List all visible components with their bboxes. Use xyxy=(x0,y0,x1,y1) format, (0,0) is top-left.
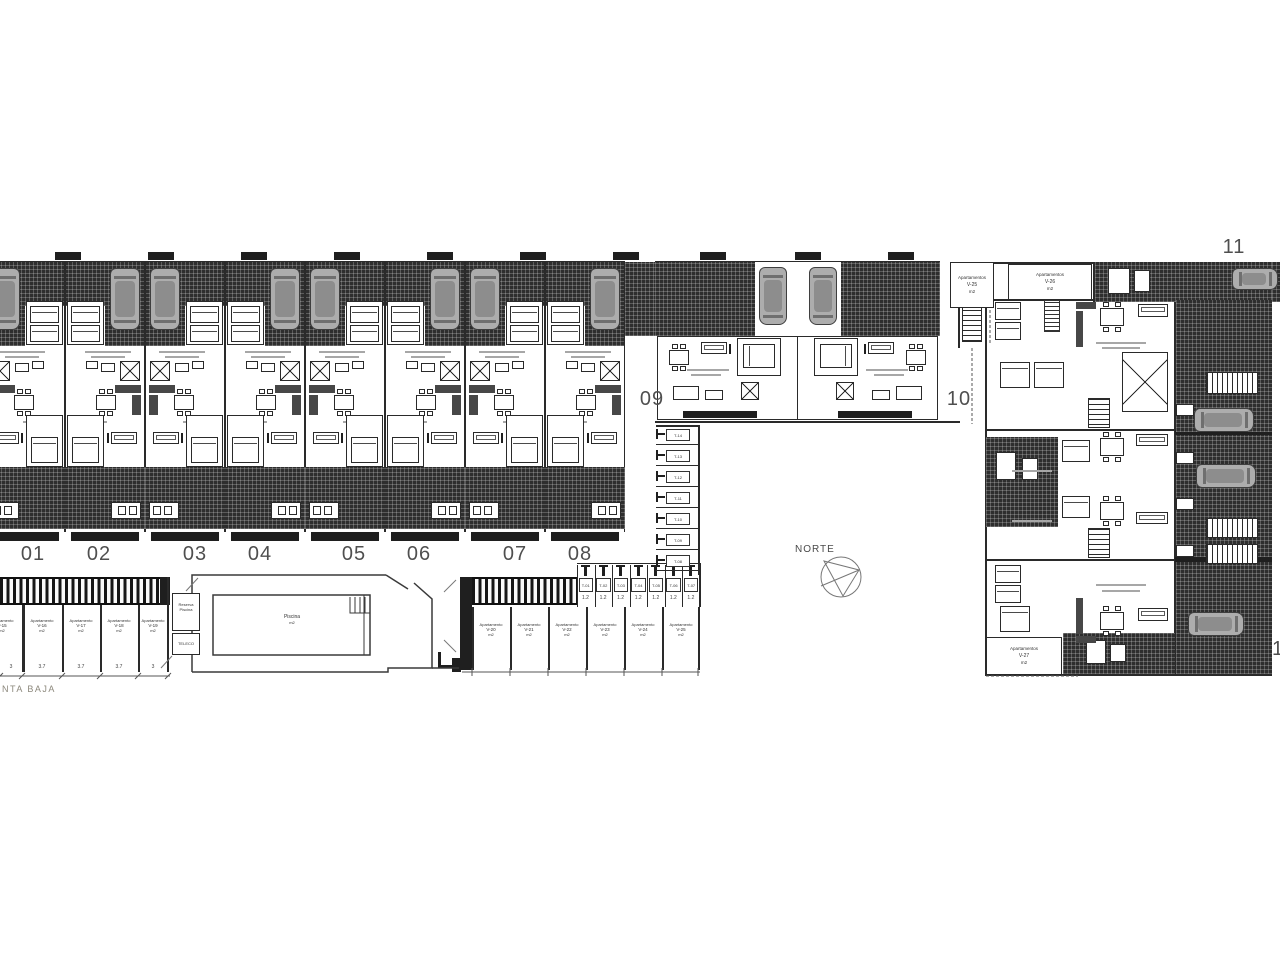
sofa-icon xyxy=(1136,512,1168,524)
dimension-value: 1.2 xyxy=(683,595,698,601)
chair-icon xyxy=(107,411,113,416)
storage-divider xyxy=(656,507,698,508)
car-roof xyxy=(1198,617,1232,631)
rear-patio-hatch xyxy=(65,467,145,529)
chair-icon xyxy=(909,344,915,349)
kitchen-counter xyxy=(115,385,141,393)
storage-unit-label: T-07 xyxy=(684,578,699,592)
storage-divider xyxy=(656,528,698,529)
unit-number: 04 xyxy=(244,543,276,566)
apartment-box-title: Apartamentos xyxy=(1036,272,1064,278)
micro-text xyxy=(874,374,904,376)
bed-icon xyxy=(350,325,379,342)
chair-icon xyxy=(177,389,183,394)
table-icon xyxy=(576,395,596,410)
rear-wall xyxy=(311,532,379,541)
kitchen-counter xyxy=(1076,636,1096,643)
kitchen-counter xyxy=(0,385,15,393)
car-glass xyxy=(1239,272,1242,286)
courtyard-wall xyxy=(655,421,960,423)
storage-funnel-stem xyxy=(602,567,605,576)
kitchen-counter xyxy=(309,395,318,415)
bed-icon xyxy=(1000,362,1030,388)
kitchen-counter xyxy=(1076,302,1096,309)
car-glass xyxy=(813,315,833,318)
bed-icon xyxy=(71,306,100,323)
micro-text xyxy=(1012,470,1052,472)
parking-stall-label: ApartamentoV-19m2 xyxy=(135,618,171,633)
chair-icon xyxy=(579,389,585,394)
storage-unit-label: T-13 xyxy=(666,450,690,462)
storage-funnel-stem xyxy=(658,538,665,540)
parking-stall-label: ApartamentoV-25m2 xyxy=(663,622,699,637)
kitchen-counter xyxy=(469,395,478,415)
bed-icon xyxy=(191,437,218,463)
shower-icon xyxy=(741,382,759,400)
car-icon xyxy=(809,267,837,325)
sofa-icon xyxy=(473,432,499,444)
car-glass xyxy=(1245,412,1248,428)
apartment-label-box-v26: Apartamentos V-26 m2 xyxy=(1008,264,1092,300)
tv-icon xyxy=(267,433,269,443)
chair-icon xyxy=(427,389,433,394)
shed-door xyxy=(164,506,172,515)
dimension-value: 3.7 xyxy=(111,664,127,670)
apartment-label-box-v27: Apartamentos V-27 m2 xyxy=(986,637,1062,675)
dimension-value: 3 xyxy=(145,664,161,670)
rear-wall xyxy=(471,532,539,541)
table-icon xyxy=(14,395,34,410)
bed-icon xyxy=(350,306,379,323)
car-glass xyxy=(274,276,296,279)
car-glass xyxy=(314,320,336,323)
bath-fixture xyxy=(872,390,890,400)
bed-icon xyxy=(995,585,1021,603)
table-icon xyxy=(96,395,116,410)
car-icon xyxy=(590,268,620,330)
storage-funnel-stem xyxy=(658,475,665,477)
storage-funnel-stem xyxy=(658,433,665,435)
car-glass xyxy=(1247,468,1250,484)
telecom-room-label: TELECO xyxy=(173,634,199,646)
storage-divider xyxy=(656,444,698,445)
micro-text xyxy=(565,351,611,353)
terrace-fixture xyxy=(1110,644,1126,662)
terrace-fixture xyxy=(1176,498,1194,510)
car-glass xyxy=(474,276,496,279)
dimension-value: 3.7 xyxy=(73,664,89,670)
bath-fixture xyxy=(581,363,595,372)
chair-icon xyxy=(917,366,923,371)
car-roof xyxy=(1206,469,1244,483)
tv-icon xyxy=(501,433,503,443)
chair-icon xyxy=(1115,302,1121,307)
micro-text xyxy=(479,351,525,353)
shed-door xyxy=(129,506,137,515)
car-roof xyxy=(1204,413,1242,427)
block-wall xyxy=(985,559,1176,561)
chair-icon xyxy=(1103,606,1109,611)
tv-icon xyxy=(21,433,23,443)
stall-label-line: m2 xyxy=(24,628,60,633)
storage-funnel-stem xyxy=(658,517,665,519)
bath-fixture xyxy=(512,361,524,369)
car-glass xyxy=(1269,272,1272,286)
floor-plan-canvas: 01020304050607080910ApartamentoV-15m2Apa… xyxy=(0,0,1280,960)
bed-icon xyxy=(30,306,59,323)
car-roof xyxy=(115,281,135,317)
table-icon xyxy=(174,395,194,410)
locker-row xyxy=(472,577,577,605)
chair-icon xyxy=(1103,302,1109,307)
apartment-label-box-v25: Apartamentos V-25 m2 xyxy=(950,262,994,308)
stall-divider xyxy=(548,607,550,670)
bed-icon xyxy=(551,306,580,323)
car-roof xyxy=(0,281,15,317)
car-icon xyxy=(1188,612,1244,636)
floor-plan-scene: 01020304050607080910ApartamentoV-15m2Apa… xyxy=(0,0,1280,960)
bed-icon xyxy=(551,325,580,342)
parking-stall-label: ApartamentoV-21m2 xyxy=(511,622,547,637)
bath-fixture xyxy=(101,363,115,372)
townhouse-unit xyxy=(145,255,225,545)
pool-plant-room: Reserva Piscina xyxy=(172,593,200,631)
floor-plan-title: NTA BAJA xyxy=(2,684,56,694)
block-number: 11 xyxy=(1216,236,1252,259)
storage-divider xyxy=(656,486,698,487)
townhouse-unit-inner xyxy=(0,255,65,545)
stairs xyxy=(1206,518,1258,538)
rear-patio-hatch xyxy=(385,467,465,529)
bed-icon xyxy=(231,325,260,342)
chair-icon xyxy=(497,411,503,416)
sofa-icon xyxy=(701,342,727,354)
storage-unit-label: T-03 xyxy=(614,578,629,592)
dimension-value: 1.2 xyxy=(666,595,681,601)
chair-icon xyxy=(1103,327,1109,332)
micro-text xyxy=(245,351,291,353)
townhouse-unit-inner xyxy=(225,255,305,545)
rear-patio-hatch xyxy=(305,467,385,529)
stall-label-line: m2 xyxy=(135,628,171,633)
rear-wall xyxy=(0,532,59,541)
bath-fixture xyxy=(192,361,204,369)
rear-wall xyxy=(71,532,139,541)
micro-text xyxy=(319,351,365,353)
chair-icon xyxy=(497,389,503,394)
apartment-box-id: V-25 xyxy=(967,282,977,288)
car-icon xyxy=(470,268,500,330)
stairs xyxy=(1206,544,1258,564)
shower-icon xyxy=(836,382,854,400)
chair-icon xyxy=(680,344,686,349)
car-glass xyxy=(114,320,136,323)
bed-icon xyxy=(72,437,99,463)
chair-icon xyxy=(672,344,678,349)
townhouse-unit xyxy=(385,255,465,545)
stall-label-line: m2 xyxy=(549,632,585,637)
micro-text xyxy=(1102,347,1140,349)
stall-label-line: m2 xyxy=(663,632,699,637)
dimension-value: 1.2 xyxy=(631,595,646,601)
townhouse-unit-inner xyxy=(545,255,625,545)
shed-door xyxy=(598,506,606,515)
car-roof xyxy=(764,280,782,312)
side-patio-hatch xyxy=(625,262,655,336)
storage-divider xyxy=(656,465,698,466)
car-glass xyxy=(763,315,783,318)
chair-icon xyxy=(1115,496,1121,501)
tv-icon xyxy=(341,433,343,443)
bed-icon xyxy=(743,344,775,368)
bed-icon xyxy=(511,437,538,463)
chair-icon xyxy=(587,389,593,394)
locker-row xyxy=(0,577,160,605)
parking-stall-label: ApartamentoV-20m2 xyxy=(473,622,509,637)
shed-door xyxy=(609,506,617,515)
townhouse-unit xyxy=(65,255,145,545)
car-glass xyxy=(114,276,136,279)
stair-core xyxy=(1122,352,1168,412)
car-glass xyxy=(1195,616,1198,632)
bath-fixture xyxy=(421,363,435,372)
car-roof xyxy=(595,281,615,317)
dimension-value: 1.2 xyxy=(613,595,628,601)
rear-patio-hatch xyxy=(465,467,545,529)
sofa-icon xyxy=(271,432,297,444)
bed-icon xyxy=(231,306,260,323)
car-glass xyxy=(1235,616,1238,632)
stall-divider xyxy=(624,607,626,670)
storage-funnel-stem xyxy=(584,567,587,576)
car-roof xyxy=(275,281,295,317)
bed-icon xyxy=(1034,362,1064,388)
car-icon xyxy=(759,267,787,325)
car-glass xyxy=(434,276,456,279)
townhouse-unit-inner xyxy=(465,255,545,545)
terrace-fixture xyxy=(1176,545,1194,557)
townhouse-unit-inner xyxy=(305,255,385,545)
parking-stall-label: ApartamentoV-15m2 xyxy=(0,618,20,633)
micro-text xyxy=(0,351,45,353)
rear-wall xyxy=(838,411,912,418)
stall-label-line: m2 xyxy=(101,628,137,633)
chair-icon xyxy=(17,389,23,394)
chair-icon xyxy=(1115,631,1121,636)
chair-icon xyxy=(505,389,511,394)
stall-divider xyxy=(138,605,140,672)
shed-door xyxy=(324,506,332,515)
storage-unit-label: T-02 xyxy=(596,578,611,592)
car-icon xyxy=(270,268,300,330)
car-glass xyxy=(1201,412,1204,428)
bed-icon xyxy=(71,325,100,342)
chair-icon xyxy=(1115,521,1121,526)
parapet-stub xyxy=(241,252,267,260)
dividing-wall xyxy=(460,577,472,670)
parking-stall-label: ApartamentoV-23m2 xyxy=(587,622,623,637)
car-glass xyxy=(154,276,176,279)
table-icon xyxy=(494,395,514,410)
stall-divider xyxy=(62,605,64,672)
storage-divider xyxy=(656,549,698,550)
storage-funnel-stem xyxy=(619,567,622,576)
car-icon xyxy=(310,268,340,330)
car-roof xyxy=(155,281,175,317)
stair-icon xyxy=(470,361,490,381)
kitchen-counter xyxy=(1076,311,1083,347)
storage-funnel-stem xyxy=(672,567,675,576)
storage-top-wall xyxy=(656,425,700,427)
bath-fixture xyxy=(673,386,699,400)
bed-icon xyxy=(30,325,59,342)
terrace-fixture xyxy=(1176,404,1194,416)
car-roof xyxy=(475,281,495,317)
stall-divider xyxy=(472,607,474,670)
micro-text xyxy=(1102,590,1140,592)
micro-text xyxy=(91,356,125,358)
bed-icon xyxy=(820,344,852,368)
bath-fixture xyxy=(896,386,922,400)
parking-stall-label: ApartamentoV-16m2 xyxy=(24,618,60,633)
micro-text xyxy=(159,351,205,353)
table-icon xyxy=(416,395,436,410)
parapet-stub xyxy=(427,252,453,260)
kitchen-counter xyxy=(309,385,335,393)
table-icon xyxy=(1100,308,1124,326)
kitchen-counter xyxy=(275,385,301,393)
storage-unit-label: T-08 xyxy=(666,555,690,567)
table-icon xyxy=(1100,502,1124,520)
bed-icon xyxy=(1062,496,1090,518)
telecom-room: TELECO xyxy=(172,633,200,655)
bath-fixture xyxy=(705,390,723,400)
parking-stall-label: ApartamentoV-24m2 xyxy=(625,622,661,637)
storage-unit-label: T-12 xyxy=(666,471,690,483)
car-glass xyxy=(1203,468,1206,484)
unit-number: 07 xyxy=(499,543,531,566)
micro-text xyxy=(1096,342,1146,344)
shed-door xyxy=(438,506,446,515)
bath-fixture xyxy=(15,363,29,372)
rear-patio-hatch xyxy=(225,467,305,529)
bath-fixture xyxy=(406,361,418,369)
stair-icon xyxy=(120,361,140,381)
townhouse-unit xyxy=(225,255,305,545)
apartment-box-id: V-27 xyxy=(1019,653,1029,659)
rear-wall xyxy=(391,532,459,541)
chair-icon xyxy=(1103,432,1109,437)
townhouse-unit-inner xyxy=(145,255,225,545)
kitchen-counter xyxy=(435,385,461,393)
pool-label: Piscina m2 xyxy=(250,614,334,626)
shed-door xyxy=(289,506,297,515)
micro-text xyxy=(251,356,285,358)
chair-icon xyxy=(17,411,23,416)
sofa-icon xyxy=(1136,434,1168,446)
bed-icon xyxy=(1000,606,1030,632)
storage-funnel-stem xyxy=(654,567,657,576)
chair-icon xyxy=(337,389,343,394)
chair-icon xyxy=(107,389,113,394)
chair-icon xyxy=(259,389,265,394)
storage-unit-label: T-14 xyxy=(666,429,690,441)
apartment-box-id: V-26 xyxy=(1045,279,1055,285)
chair-icon xyxy=(909,366,915,371)
kitchen-counter xyxy=(292,395,301,415)
parapet-stub xyxy=(520,252,546,260)
car-glass xyxy=(434,320,456,323)
apartment-box-title: Apartamentos xyxy=(1010,646,1038,652)
rear-wall xyxy=(231,532,299,541)
table-icon xyxy=(1100,612,1124,630)
tv-icon xyxy=(587,433,589,443)
stall-label-line: m2 xyxy=(511,632,547,637)
dimension-value: 1.2 xyxy=(578,595,593,601)
tv-icon xyxy=(864,344,866,354)
wall-foot xyxy=(452,658,461,672)
stall-label-line: m2 xyxy=(473,632,509,637)
micro-text xyxy=(325,356,359,358)
chair-icon xyxy=(587,411,593,416)
kitchen-counter xyxy=(612,395,621,415)
terrace-fixture xyxy=(1022,458,1038,480)
shed-door xyxy=(473,506,481,515)
apartment-box-area: m2 xyxy=(1021,660,1027,666)
apartment-box-area: m2 xyxy=(1047,286,1053,292)
bed-icon xyxy=(552,437,579,463)
micro-text xyxy=(571,356,605,358)
car-glass xyxy=(0,320,16,323)
stall-divider xyxy=(586,607,588,670)
chair-icon xyxy=(917,344,923,349)
kitchen-counter xyxy=(469,385,495,393)
terrace-fixture xyxy=(1086,640,1106,664)
pool-plant-room-label: Reserva Piscina xyxy=(173,594,199,612)
car-roof xyxy=(435,281,455,317)
townhouse-unit xyxy=(0,255,65,545)
chair-icon xyxy=(1115,606,1121,611)
chair-icon xyxy=(419,389,425,394)
car-glass xyxy=(594,320,616,323)
rear-wall xyxy=(683,411,757,418)
table-icon xyxy=(256,395,276,410)
stairs xyxy=(1088,528,1110,558)
sofa-icon xyxy=(1138,304,1168,317)
townhouse-unit-inner xyxy=(65,255,145,545)
micro-text xyxy=(1012,520,1052,522)
shed-door xyxy=(118,506,126,515)
bed-icon xyxy=(995,322,1021,340)
townhouse-unit xyxy=(465,255,545,545)
unit-number: 08 xyxy=(564,543,596,566)
bed-icon xyxy=(392,437,419,463)
bath-fixture xyxy=(86,361,98,369)
dimension-value: 3.7 xyxy=(34,664,50,670)
stair-icon xyxy=(280,361,300,381)
sofa-icon xyxy=(0,432,19,444)
duplex-half xyxy=(799,336,938,420)
rear-patio-hatch xyxy=(545,467,625,529)
car-icon xyxy=(430,268,460,330)
chair-icon xyxy=(427,411,433,416)
car-roof xyxy=(1242,273,1266,285)
car-icon xyxy=(1196,464,1256,488)
party-wall xyxy=(797,336,799,420)
stair-icon xyxy=(0,361,10,381)
bath-fixture xyxy=(352,361,364,369)
car-glass xyxy=(594,276,616,279)
